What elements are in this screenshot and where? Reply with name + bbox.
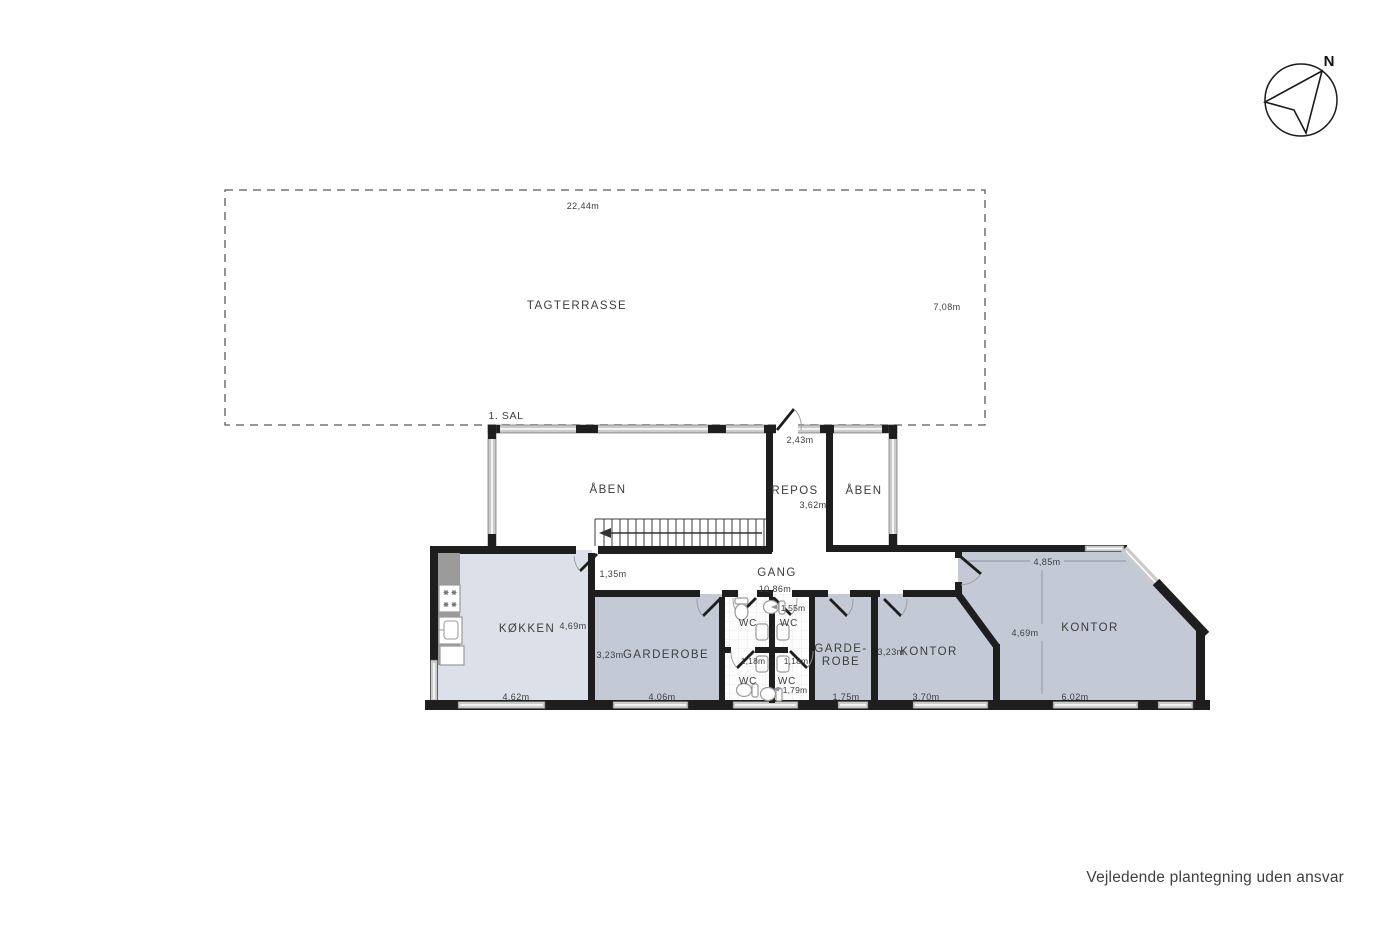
wc-tr-width-dim: 1,55m: [781, 603, 806, 613]
wc-tl-label: WC: [739, 618, 757, 629]
compass-icon: N: [1265, 53, 1337, 136]
toilet-icon: [735, 598, 748, 620]
aaben-right-label: ÅBEN: [846, 484, 883, 497]
wc-br-depth-dim: 1,79m: [783, 685, 808, 695]
garde-robe-label-1: GARDE-: [814, 643, 867, 655]
terrace-width-dim: 22,44m: [567, 201, 599, 211]
wc-bl-width-dim: 1,18m: [741, 656, 766, 666]
garderobe-width-dim: 4,06m: [648, 692, 675, 702]
kontor-right-width-dim: 6,02m: [1061, 692, 1088, 702]
kontor-right-depth-dim: 4,69m: [1011, 628, 1038, 638]
aaben-left-label: ÅBEN: [590, 483, 627, 496]
kontor-left-width-dim: 3,70m: [912, 692, 939, 702]
gang-length-dim: 10,86m: [759, 584, 791, 594]
garderobe-label: GARDEROBE: [623, 649, 709, 661]
wc-bl-label: WC: [739, 676, 757, 687]
wc-br-width-dim: 1,18m: [784, 656, 809, 666]
kontor-left-label: KONTOR: [900, 646, 957, 658]
garderobe-depth-dim: 3,23m: [596, 650, 623, 660]
koekken-width-dim: 4,62m: [502, 692, 529, 702]
kontor-right-top-dim: 4,85m: [1033, 557, 1060, 567]
terrace-depth-dim: 7,08m: [933, 302, 960, 312]
sink-icon: [439, 617, 462, 644]
repos-label: REPOS: [771, 485, 818, 497]
kontor-right-label: KONTOR: [1061, 622, 1118, 634]
disclaimer-text: Vejledende plantegning uden ansvar: [1086, 869, 1344, 886]
wc-tr-label: WC: [780, 618, 798, 629]
floor-label: 1. SAL: [488, 410, 523, 422]
gang-label: GANG: [757, 567, 796, 579]
compass-north-label: N: [1324, 53, 1335, 70]
koekken-depth-dim: 4,69m: [559, 621, 586, 631]
garde-robe-label-2: ROBE: [822, 656, 860, 668]
repos-depth-dim: 3,62m: [799, 500, 826, 510]
stairs-direction-arrow: [599, 528, 611, 538]
stove-icon: [439, 585, 460, 612]
gang-door-dim: 1,35m: [599, 569, 626, 579]
floorplan-drawing: 22,44m TAGTERRASSE 7,08m 1. SAL N: [0, 0, 1400, 933]
terrace-label: TAGTERRASSE: [527, 300, 627, 312]
dishwasher-icon: [440, 646, 464, 665]
koekken-label: KØKKEN: [499, 623, 555, 635]
floorplan-canvas: 22,44m TAGTERRASSE 7,08m 1. SAL N: [0, 0, 1400, 933]
garde-robe-width-dim: 1,75m: [832, 692, 859, 702]
stairs: [595, 519, 768, 546]
repos-door-dim: 2,43m: [786, 435, 813, 445]
